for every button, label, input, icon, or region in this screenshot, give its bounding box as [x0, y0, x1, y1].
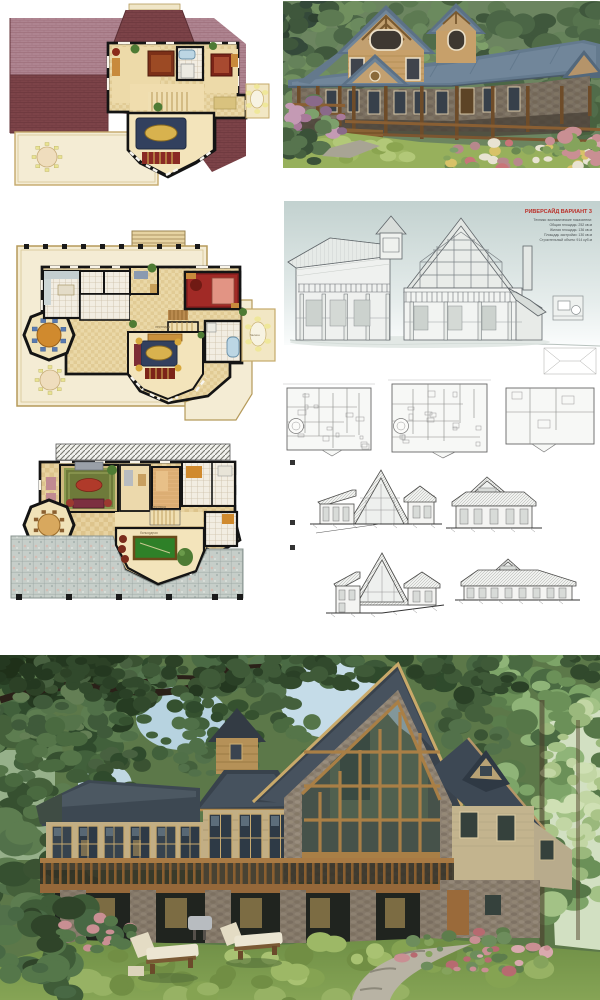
svg-text:Технико экономические показате: Технико экономические показатели: [533, 218, 592, 222]
svg-text:Общая площадь: 252 кв.м: Общая площадь: 252 кв.м [549, 223, 592, 227]
svg-text:лестница: лестница [152, 505, 166, 509]
svg-text:РИВЕРСАЙД ВАРИАНТ 3: РИВЕРСАЙД ВАРИАНТ 3 [525, 207, 592, 215]
svg-text:Площадь застройки: 130 кв.м: Площадь застройки: 130 кв.м [544, 233, 593, 237]
svg-text:балкон: балкон [250, 333, 260, 337]
svg-text:Строительный объем: 914 куб.м: Строительный объем: 914 куб.м [540, 238, 593, 242]
svg-text:Жилая площадь: 136 кв.м: Жилая площадь: 136 кв.м [550, 228, 593, 232]
svg-text:бильярдная: бильярдная [140, 531, 158, 535]
svg-text:лестница: лестница [155, 325, 170, 329]
